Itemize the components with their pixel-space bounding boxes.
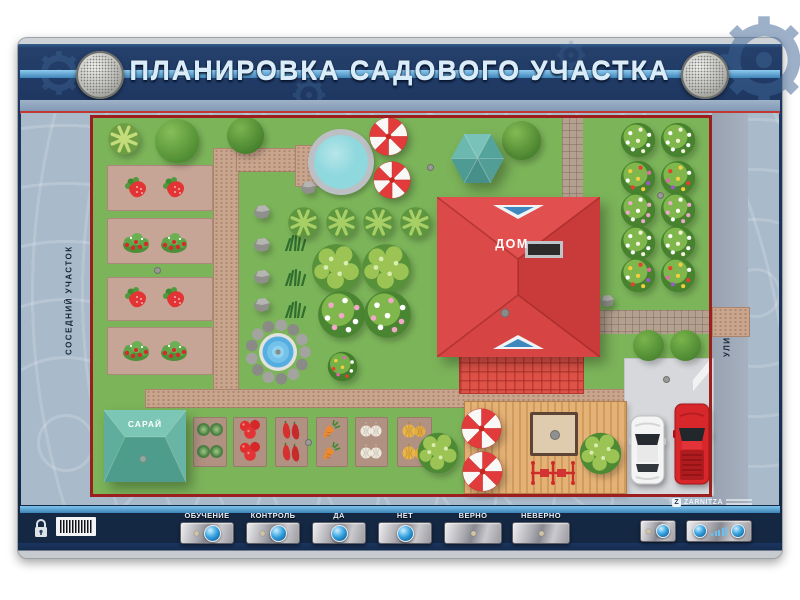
shed-label: САРАЙ bbox=[128, 418, 162, 429]
group-no: НЕТ bbox=[378, 511, 432, 544]
group-training: ОБУЧЕНИЕ bbox=[180, 511, 234, 544]
tree bbox=[416, 431, 460, 475]
flower-bush bbox=[660, 122, 696, 158]
group-correct: ВЕРНО bbox=[444, 511, 502, 544]
volume-up-button[interactable] bbox=[731, 524, 745, 538]
group-control: КОНТРОЛЬ bbox=[246, 511, 300, 544]
tomatoes bbox=[238, 419, 262, 440]
grass-tuft bbox=[284, 301, 307, 318]
rock bbox=[253, 297, 271, 313]
flower-bush bbox=[327, 351, 358, 382]
tomatoes bbox=[238, 441, 262, 462]
flower-bush bbox=[620, 257, 656, 293]
fruit-tree bbox=[310, 242, 363, 295]
control-led bbox=[260, 531, 265, 536]
car-red bbox=[673, 402, 711, 486]
swing-bench bbox=[528, 459, 578, 486]
training-label: ОБУЧЕНИЕ bbox=[180, 511, 234, 520]
group-incorrect: НЕВЕРНО bbox=[512, 511, 570, 544]
lock-icon bbox=[33, 518, 49, 539]
barcode bbox=[56, 517, 96, 536]
training-led bbox=[194, 531, 199, 536]
gazebo bbox=[450, 133, 505, 184]
garden-path bbox=[213, 148, 239, 398]
volume-control bbox=[686, 520, 752, 542]
strawberry-bush bbox=[159, 229, 189, 254]
strawberry bbox=[124, 286, 150, 311]
tree bbox=[362, 206, 395, 239]
led-marker bbox=[663, 376, 670, 383]
no-plate bbox=[378, 522, 432, 544]
garden-table bbox=[530, 412, 578, 456]
strawberry-bush bbox=[121, 337, 151, 362]
flower-bush bbox=[620, 160, 656, 196]
house-label: ДОМ bbox=[495, 237, 529, 251]
control-button[interactable] bbox=[270, 525, 287, 542]
peppers bbox=[281, 420, 302, 441]
parasol bbox=[368, 116, 409, 157]
tree bbox=[287, 206, 320, 239]
yes-plate bbox=[312, 522, 366, 544]
tree bbox=[399, 206, 432, 239]
fruit-tree bbox=[360, 242, 413, 295]
house: ДОМ bbox=[437, 197, 600, 357]
brand-logo-icon: Z bbox=[672, 498, 681, 507]
incorrect-plate bbox=[512, 522, 570, 544]
fountain bbox=[244, 318, 312, 386]
logo-fine-print bbox=[726, 499, 752, 505]
rock bbox=[253, 269, 271, 285]
incorrect-label: НЕВЕРНО bbox=[512, 511, 570, 520]
cabbage bbox=[196, 443, 224, 460]
garlic bbox=[359, 443, 383, 461]
cabbage bbox=[196, 421, 224, 438]
tree bbox=[502, 121, 541, 160]
flower-bush bbox=[620, 192, 656, 228]
brand-name: ZARNITZA bbox=[684, 499, 723, 506]
terrace-tiles bbox=[459, 352, 584, 394]
yes-label: ДА bbox=[312, 511, 366, 520]
correct-plate bbox=[444, 522, 502, 544]
no-button[interactable] bbox=[397, 525, 414, 542]
yes-button[interactable] bbox=[331, 525, 348, 542]
parasol bbox=[460, 407, 503, 450]
power-button[interactable] bbox=[656, 524, 670, 538]
led-marker bbox=[427, 164, 434, 171]
control-label: КОНТРОЛЬ bbox=[246, 511, 300, 520]
shed: САРАЙ bbox=[103, 407, 187, 485]
tree bbox=[633, 330, 664, 361]
led-marker bbox=[657, 192, 664, 199]
tree bbox=[578, 431, 623, 476]
strawberry-bed bbox=[107, 165, 213, 211]
correct-led-indicator bbox=[471, 531, 476, 536]
training-button[interactable] bbox=[204, 525, 221, 542]
strawberry bbox=[162, 286, 188, 311]
rock bbox=[253, 237, 271, 253]
garlic bbox=[359, 421, 383, 439]
strawberry bbox=[162, 176, 188, 201]
car-white bbox=[629, 414, 666, 486]
rock bbox=[253, 204, 271, 220]
strawberry-bed bbox=[107, 277, 213, 321]
parasol bbox=[372, 160, 412, 200]
group-yes: ДА bbox=[312, 511, 366, 544]
street-crossing bbox=[712, 307, 750, 337]
flower-bush bbox=[317, 290, 366, 339]
incorrect-led-indicator bbox=[539, 531, 544, 536]
control-plate bbox=[246, 522, 300, 544]
training-plate bbox=[180, 522, 234, 544]
flower-bush bbox=[660, 192, 696, 228]
carrot bbox=[321, 419, 343, 440]
brand-logo: Z ZARNITZA bbox=[672, 496, 758, 508]
flower-bush bbox=[363, 290, 412, 339]
carrot bbox=[321, 441, 343, 462]
no-label: НЕТ bbox=[378, 511, 432, 520]
gate-opening bbox=[693, 360, 712, 394]
flower-bush bbox=[620, 122, 656, 158]
tree bbox=[107, 122, 141, 156]
peppers bbox=[281, 442, 302, 463]
correct-label: ВЕРНО bbox=[444, 511, 502, 520]
strawberry bbox=[124, 176, 150, 201]
power-led bbox=[646, 529, 651, 534]
strawberry-bush bbox=[159, 337, 189, 362]
grass-tuft bbox=[284, 269, 307, 286]
parasol bbox=[461, 450, 504, 493]
rock bbox=[599, 294, 615, 308]
strawberry-bush bbox=[121, 229, 151, 254]
device-board: ПЛАНИРОВКА САДОВОГО УЧАСТКА СОСЕДНИЙ УЧА… bbox=[0, 0, 800, 600]
tree bbox=[325, 206, 358, 239]
power-control bbox=[640, 520, 676, 542]
pond bbox=[308, 129, 374, 195]
tree bbox=[227, 117, 264, 154]
flower-bush bbox=[660, 257, 696, 293]
volume-bars-icon bbox=[711, 526, 727, 536]
flower-bush bbox=[660, 225, 696, 261]
flower-bush bbox=[620, 225, 656, 261]
flower-bush bbox=[660, 160, 696, 196]
tree bbox=[670, 330, 701, 361]
volume-down-button[interactable] bbox=[693, 524, 707, 538]
led-marker bbox=[305, 439, 312, 446]
led-marker bbox=[154, 267, 161, 274]
tree bbox=[155, 119, 199, 163]
